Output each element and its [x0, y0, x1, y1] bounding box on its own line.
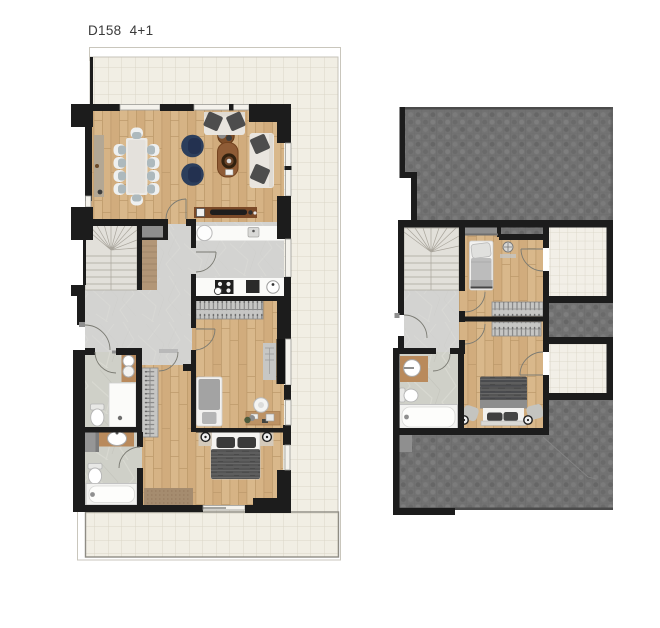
svg-text:D158 4+1: D158 4+1: [88, 23, 153, 38]
